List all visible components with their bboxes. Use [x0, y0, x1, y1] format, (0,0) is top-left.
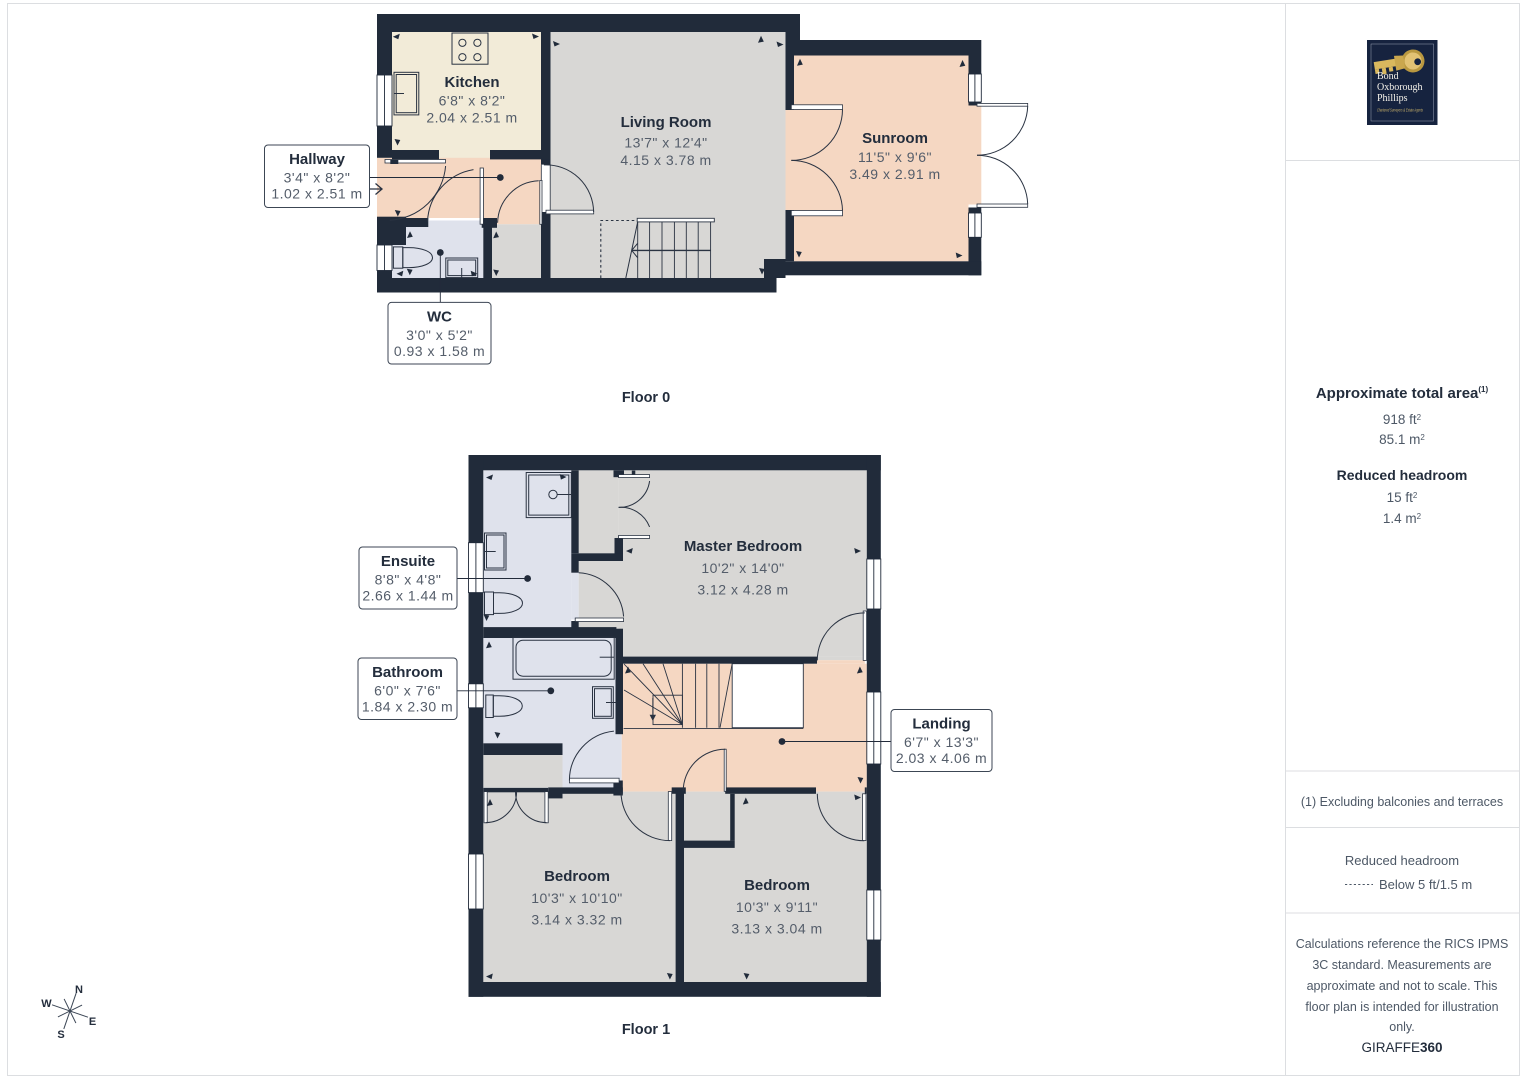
svg-text:Floor 0: Floor 0 [622, 390, 670, 406]
svg-text:Sunroom: Sunroom [862, 130, 928, 147]
svg-text:2.04 x 2.51 m: 2.04 x 2.51 m [426, 110, 517, 126]
svg-text:floor plan is intended for ill: floor plan is intended for illustration [1305, 1000, 1498, 1014]
svg-text:6'8" x 8'2": 6'8" x 8'2" [439, 93, 506, 109]
svg-text:Reduced headroom: Reduced headroom [1337, 467, 1468, 483]
svg-text:10'3" x 9'11": 10'3" x 9'11" [736, 899, 818, 915]
svg-text:918 ft2: 918 ft2 [1383, 412, 1422, 427]
svg-text:Living Room: Living Room [621, 114, 712, 131]
svg-text:3'4" x 8'2": 3'4" x 8'2" [284, 170, 351, 186]
svg-text:Bedroom: Bedroom [544, 868, 610, 885]
svg-text:11'5" x 9'6": 11'5" x 9'6" [858, 149, 932, 165]
svg-text:Oxborough: Oxborough [1377, 82, 1423, 93]
svg-text:4.15 x 3.78 m: 4.15 x 3.78 m [620, 152, 711, 168]
svg-text:Kitchen: Kitchen [444, 74, 499, 91]
svg-text:Floor 1: Floor 1 [622, 1022, 670, 1038]
svg-text:E: E [89, 1016, 96, 1028]
svg-text:Reduced headroom: Reduced headroom [1345, 853, 1459, 868]
svg-text:2.03 x 4.06 m: 2.03 x 4.06 m [896, 750, 987, 766]
svg-text:3C standard. Measurements are: 3C standard. Measurements are [1312, 958, 1491, 972]
svg-text:S: S [57, 1029, 64, 1041]
svg-text:6'7" x 13'3": 6'7" x 13'3" [904, 734, 979, 750]
svg-text:13'7" x 12'4": 13'7" x 12'4" [624, 134, 707, 150]
svg-text:only.: only. [1389, 1020, 1414, 1034]
svg-text:3.49 x 2.91 m: 3.49 x 2.91 m [849, 166, 940, 182]
svg-text:1.84 x 2.30 m: 1.84 x 2.30 m [362, 699, 453, 715]
svg-text:1.4 m2: 1.4 m2 [1383, 511, 1422, 526]
svg-text:Ensuite: Ensuite [381, 553, 435, 570]
svg-text:Bedroom: Bedroom [744, 877, 810, 894]
svg-text:1.02 x 2.51 m: 1.02 x 2.51 m [271, 186, 362, 202]
svg-text:10'3" x 10'10": 10'3" x 10'10" [531, 890, 623, 906]
svg-text:Landing: Landing [912, 716, 970, 733]
svg-text:GIRAFFE360: GIRAFFE360 [1361, 1040, 1442, 1055]
svg-text:Hallway: Hallway [289, 151, 346, 168]
svg-text:15 ft2: 15 ft2 [1387, 490, 1418, 505]
svg-text:Master Bedroom: Master Bedroom [684, 538, 802, 555]
svg-text:2.66 x 1.44 m: 2.66 x 1.44 m [362, 588, 453, 604]
svg-text:0.93 x 1.58 m: 0.93 x 1.58 m [394, 343, 485, 359]
svg-text:85.1 m2: 85.1 m2 [1379, 432, 1425, 447]
svg-text:3.14 x 3.32 m: 3.14 x 3.32 m [531, 912, 622, 928]
svg-text:3.12 x 4.28 m: 3.12 x 4.28 m [697, 582, 788, 598]
svg-text:(1) Excluding balconies and te: (1) Excluding balconies and terraces [1301, 795, 1503, 809]
svg-text:Bond: Bond [1377, 71, 1399, 82]
svg-text:approximate and not to scale.: approximate and not to scale. This [1307, 979, 1498, 993]
svg-text:10'2" x 14'0": 10'2" x 14'0" [701, 560, 784, 576]
svg-text:3.13 x 3.04 m: 3.13 x 3.04 m [731, 921, 822, 937]
svg-text:Chartered Surveyors & Estate A: Chartered Surveyors & Estate Agents [1377, 108, 1424, 113]
svg-text:WC: WC [427, 308, 452, 325]
svg-text:3'0" x 5'2": 3'0" x 5'2" [406, 327, 473, 343]
svg-text:N: N [75, 984, 83, 996]
svg-text:Calculations reference the RIC: Calculations reference the RICS IPMS [1296, 937, 1509, 951]
svg-text:6'0" x 7'6": 6'0" x 7'6" [374, 683, 441, 699]
svg-text:Below 5 ft/1.5 m: Below 5 ft/1.5 m [1379, 877, 1472, 892]
svg-text:W: W [41, 998, 52, 1010]
svg-text:Phillips: Phillips [1377, 93, 1408, 104]
svg-text:Bathroom: Bathroom [372, 664, 443, 681]
svg-text:8'8" x 4'8": 8'8" x 4'8" [375, 572, 442, 588]
svg-text:Approximate total area(1): Approximate total area(1) [1316, 385, 1489, 402]
